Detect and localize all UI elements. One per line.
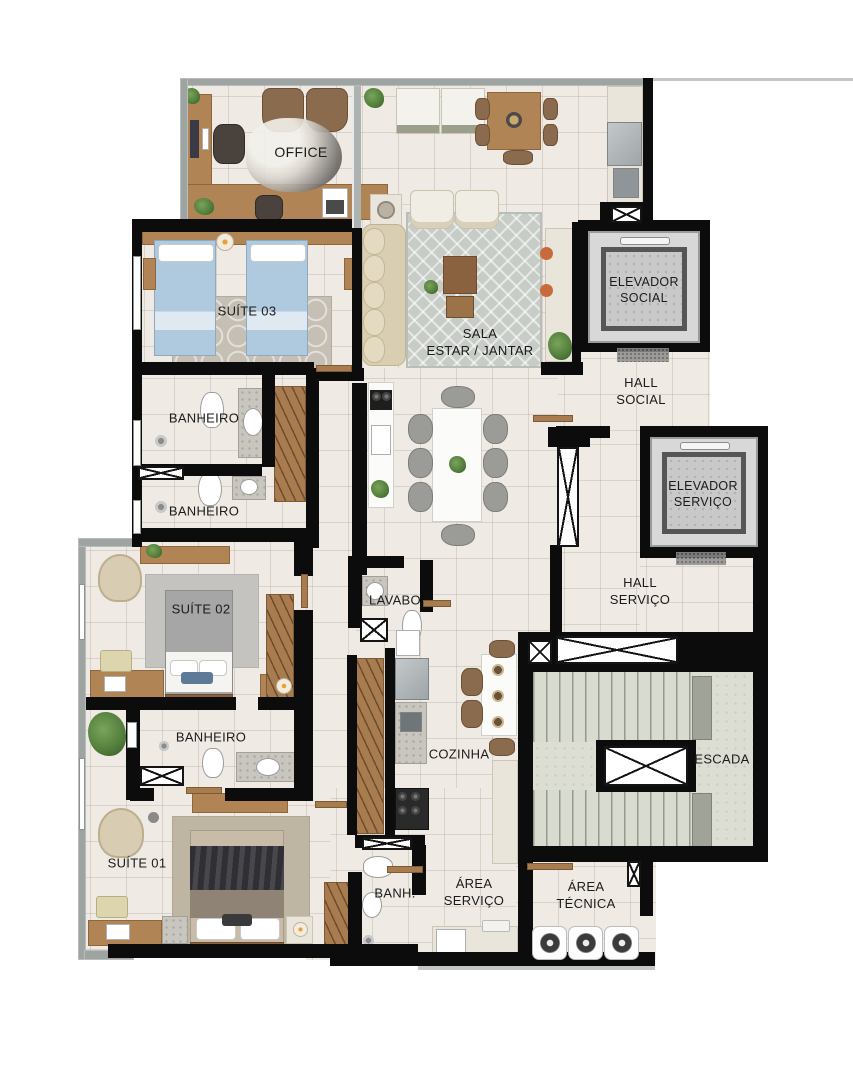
plant-icon (449, 456, 466, 473)
chair-icon (483, 414, 508, 444)
sink-icon (240, 479, 258, 495)
lamp-icon (276, 678, 292, 694)
room-label-escada: ESCADA (694, 752, 749, 769)
room-label-suite03: SUÍTE 03 (218, 304, 277, 321)
duct-icon (604, 746, 688, 786)
chair-icon (503, 150, 533, 165)
chair-icon (475, 98, 490, 120)
washtub-icon (436, 929, 466, 953)
chair-icon (543, 98, 558, 120)
shower-icon (154, 434, 168, 448)
armchair-icon (455, 190, 499, 229)
keyboard-icon (202, 128, 209, 150)
stool-icon (540, 284, 553, 297)
wall (294, 610, 313, 700)
wall (132, 219, 360, 232)
coffee-table-icon (443, 256, 477, 294)
cabinet-icon (396, 630, 420, 656)
handrail (692, 676, 712, 740)
stair-steps (533, 672, 693, 742)
elevator-door-icon (680, 442, 730, 450)
outer-wall-top (180, 78, 652, 86)
chair-icon (489, 640, 515, 658)
burner-icon (411, 792, 420, 801)
chair-icon (483, 482, 508, 512)
floor-lamp-icon (148, 812, 159, 823)
sofa-cushion (363, 228, 385, 255)
cushion-icon (222, 914, 252, 926)
kitchen-counter (492, 760, 518, 864)
room-label-suite02: SUÍTE 02 (172, 602, 231, 619)
room-label-cozinha: COZINHA (429, 747, 490, 764)
plant-icon (424, 280, 438, 294)
chair-icon (441, 524, 475, 546)
wardrobe-icon (274, 386, 306, 502)
window (79, 584, 85, 640)
ac-unit-icon (532, 926, 567, 960)
wall (126, 700, 140, 800)
room-label-lavabo: LAVABO (369, 593, 421, 610)
pantry-cabinet-icon (356, 658, 384, 834)
chair-icon (489, 738, 515, 756)
room-label-hall-social: HALL SOCIAL (616, 375, 665, 409)
stool-icon (540, 247, 553, 260)
wall (347, 655, 357, 835)
tray-icon (371, 425, 391, 455)
sofa-cushion (363, 255, 385, 282)
outer-wall-wing-top (78, 538, 136, 547)
wall (352, 383, 367, 575)
duct-icon (611, 206, 642, 223)
door-icon (423, 600, 451, 607)
pillow-icon (158, 244, 214, 262)
duct-icon (627, 861, 641, 887)
tray-icon (377, 201, 395, 219)
armchair-icon (396, 88, 440, 134)
wall (262, 375, 275, 467)
door-icon (301, 574, 308, 608)
wall (556, 426, 610, 438)
sink-icon (243, 408, 263, 436)
stair-steps (533, 790, 693, 846)
sofa-cushion (363, 282, 385, 309)
plant-icon (371, 480, 389, 498)
plant-icon (146, 544, 162, 558)
room-label-sala: SALA ESTAR / JANTAR (426, 326, 533, 360)
fridge-icon (395, 658, 429, 700)
glass-partition (352, 86, 361, 230)
wall (352, 228, 362, 373)
sink-icon (400, 712, 422, 732)
printer-icon (326, 200, 344, 214)
duct-icon (362, 837, 412, 850)
wall (518, 632, 533, 962)
plant-icon (548, 332, 572, 360)
plant-icon (88, 712, 126, 756)
plate-icon (492, 716, 504, 728)
office-chair-icon (213, 124, 245, 164)
lamp-icon (216, 233, 234, 251)
wall (306, 368, 319, 548)
room-label-office: OFFICE (274, 143, 327, 161)
ac-unit-icon (604, 926, 639, 960)
books-icon (104, 676, 126, 692)
sofa-cushion (363, 309, 385, 336)
room-label-suite01: SUÍTE 01 (108, 856, 167, 873)
coffee-table-icon (446, 296, 474, 318)
stair-wall (753, 632, 768, 862)
books-icon (106, 924, 130, 940)
plate-icon (492, 690, 504, 702)
door-icon (186, 787, 222, 794)
room-label-elevador-social: ELEVADOR SOCIAL (609, 274, 679, 307)
chair-icon (483, 448, 508, 478)
wall (130, 788, 154, 801)
chair-icon (461, 700, 483, 728)
chair-icon (543, 124, 558, 146)
wall (294, 540, 313, 576)
washer-icon (482, 920, 510, 932)
window (79, 758, 85, 830)
chair-icon (461, 668, 483, 696)
stair-wall (518, 846, 768, 862)
pillow-icon (250, 244, 306, 262)
burner-icon (398, 806, 407, 815)
wall (132, 528, 312, 542)
sink-icon (613, 168, 639, 198)
chair-icon (408, 414, 433, 444)
burner-icon (398, 792, 407, 801)
elevator-mat (676, 552, 726, 565)
property-line (650, 78, 853, 81)
door-icon (316, 365, 352, 372)
room-label-area-tecnica: ÁREA TÉCNICA (556, 879, 615, 913)
wardrobe-icon (324, 882, 350, 946)
sink-icon (256, 758, 280, 776)
window (133, 500, 141, 534)
wall (225, 788, 313, 801)
shower-box-icon (140, 766, 184, 786)
door-icon (533, 415, 573, 422)
chair-icon (408, 482, 433, 512)
door-icon (387, 866, 423, 873)
handrail (692, 793, 712, 849)
wall (385, 648, 395, 838)
armchair-icon (410, 190, 454, 229)
burner-icon (372, 392, 381, 401)
armchair-icon (98, 554, 142, 602)
elevator-mat (617, 348, 669, 362)
floor-plan: OFFICE SUÍTE 03 SALA ESTAR / JANTAR ELEV… (0, 0, 853, 1080)
outer-wall-office-left (180, 78, 188, 228)
room-label-banh: BANH. (374, 886, 415, 903)
duct-icon (556, 636, 678, 664)
wall (294, 698, 313, 800)
wall (86, 697, 236, 710)
plate-icon (492, 664, 504, 676)
burner-icon (411, 806, 420, 815)
wall (640, 858, 653, 916)
duct-icon (528, 640, 552, 664)
wall (132, 362, 314, 375)
room-label-hall-servico: HALL SERVIÇO (610, 575, 670, 609)
armchair-icon (98, 808, 144, 858)
bed-throw (190, 846, 284, 890)
window (133, 256, 141, 330)
window (127, 722, 137, 748)
chair-icon (475, 124, 490, 146)
plant-icon (364, 88, 384, 108)
centerpiece-icon (506, 112, 522, 128)
ac-unit-icon (568, 926, 603, 960)
window (133, 420, 141, 466)
lamp-icon (293, 922, 308, 937)
burner-icon (382, 392, 391, 401)
wall (541, 362, 583, 375)
typewriter-icon (96, 896, 128, 918)
shower-icon (154, 500, 168, 514)
duct-icon (360, 618, 388, 642)
toilet-icon (202, 748, 224, 778)
duct-icon (138, 466, 184, 480)
sofa-cushion (363, 336, 385, 363)
room-label-banheiro-mid: BANHEIRO (169, 504, 239, 521)
chair-icon (441, 386, 475, 408)
room-label-area-servico: ÁREA SERVIÇO (444, 876, 504, 910)
wall (550, 545, 562, 637)
door-icon (527, 863, 573, 870)
room-label-banheiro-top: BANHEIRO (169, 411, 239, 428)
plant-icon (194, 198, 214, 215)
room-label-banheiro-suite01: BANHEIRO (176, 730, 246, 747)
room-label-elevador-servico: ELEVADOR SERVIÇO (668, 478, 738, 511)
elevator-door-icon (620, 237, 670, 245)
chair-icon (255, 195, 283, 221)
typewriter-icon (100, 650, 132, 672)
service-door-icon (557, 447, 579, 547)
door-icon (315, 801, 347, 808)
nightstand (162, 916, 188, 944)
toilet-icon (198, 472, 222, 506)
fridge-icon (607, 122, 642, 166)
shower-icon (158, 740, 170, 752)
monitor-icon (190, 120, 199, 158)
nightstand (143, 258, 156, 290)
cushion-icon (181, 672, 213, 684)
wall (753, 548, 768, 636)
chair-icon (408, 448, 433, 478)
